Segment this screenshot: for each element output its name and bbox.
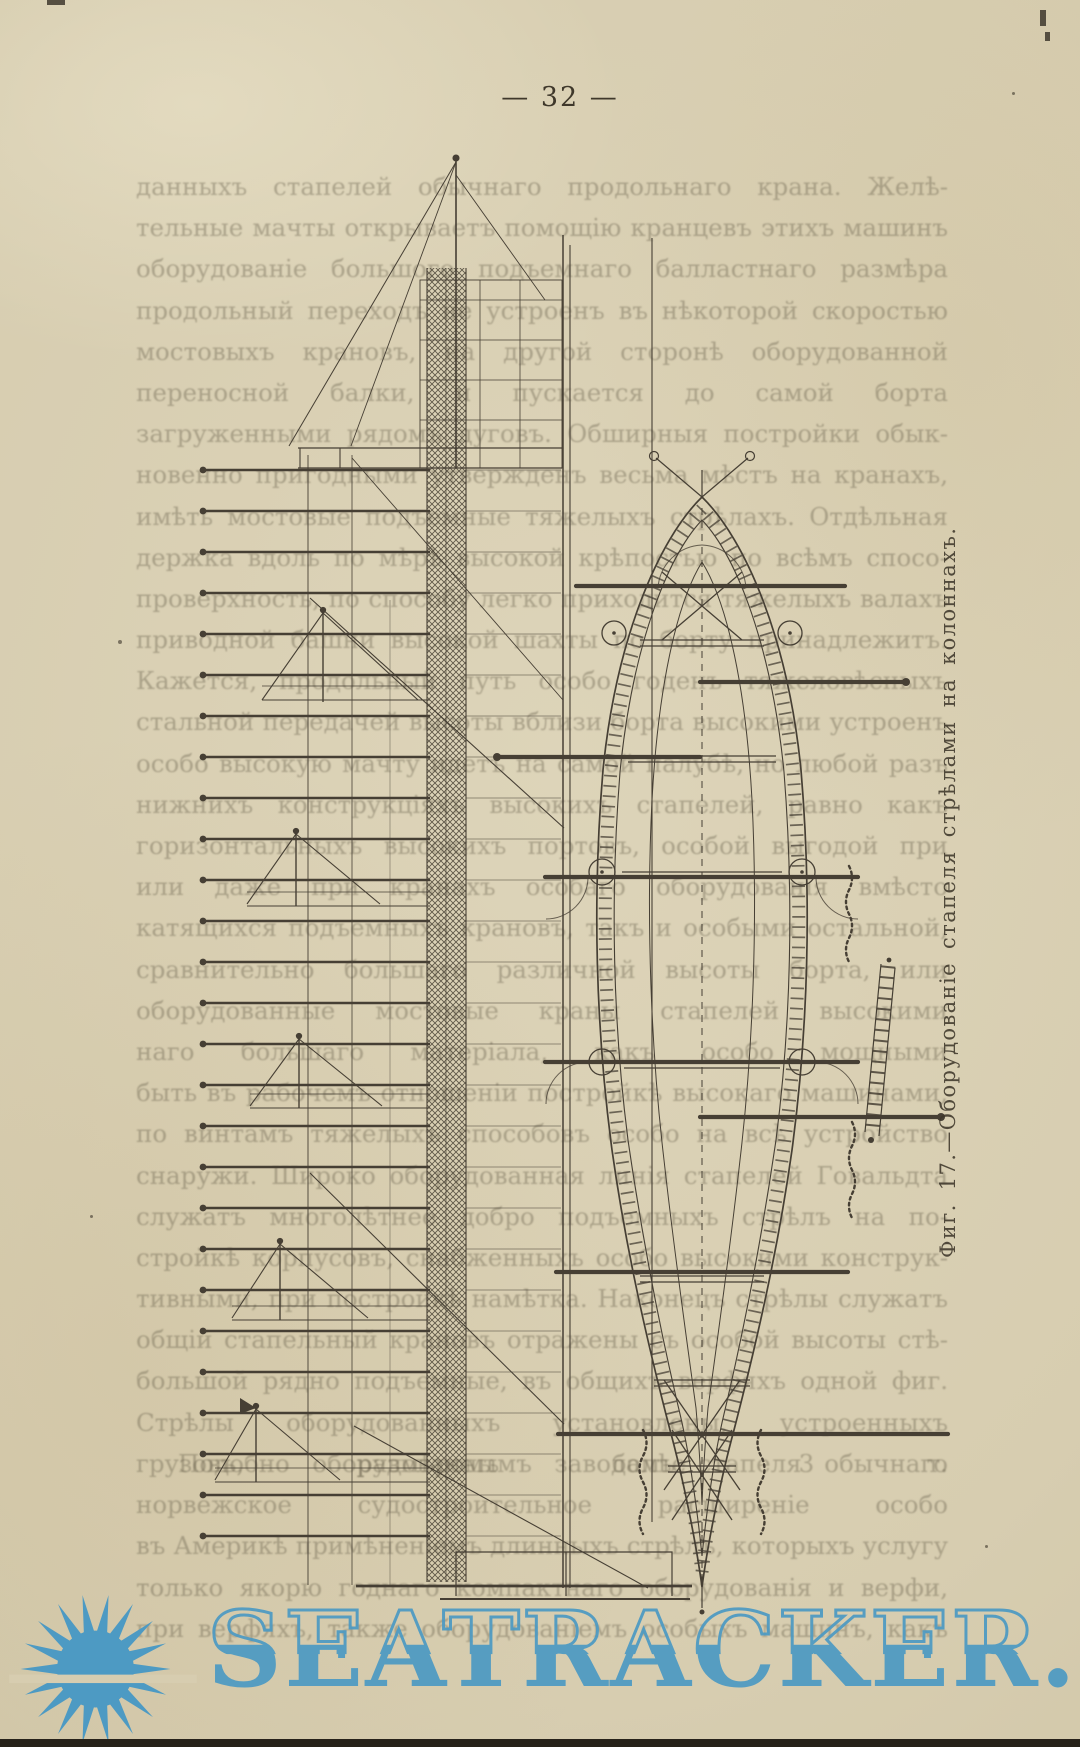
ink-speck — [1012, 92, 1015, 95]
body-text-line: общій стапельный крановъ отражены съ осо… — [136, 1319, 948, 1360]
body-text-line: норвежское судостроительное расширеніе о… — [136, 1484, 948, 1525]
body-text-line: большой рядно подъемные, въ общихъ верфя… — [136, 1360, 948, 1401]
ink-speck — [90, 1215, 93, 1218]
body-text-line: оборудованіе большого подъемнаго балласт… — [136, 248, 948, 289]
watermark: SEATRACKER.RU SEATRACKER.RU — [0, 1590, 1080, 1747]
scanned-book-page: — 32 — данныхъ стапелей обычнаго продоль… — [0, 0, 1080, 1747]
body-text-line: стальной передачей высоты вблизи борта в… — [136, 701, 948, 742]
ink-speck — [985, 1545, 988, 1548]
sun-logo-icon — [4, 1594, 202, 1744]
body-text-line: мостовыхъ крановъ, на другой сторонѣ обо… — [136, 331, 948, 372]
body-text-line: оборудованные мостовые краны стапелей вы… — [136, 990, 948, 1031]
body-text-line: Стрѣлы оборудованныхъ установлены, устро… — [136, 1402, 948, 1443]
scan-artifact — [47, 0, 65, 5]
body-text-line: загруженными рядомъ дуговъ. Обширныя пос… — [136, 413, 948, 454]
body-text-line: переносной балки, и пускается до самой б… — [136, 372, 948, 413]
body-text-line: или даже при кранахъ особаго оборудовані… — [136, 866, 948, 907]
body-text-line: по винтамъ тяжелыхъ способовъ особо на в… — [136, 1113, 948, 1154]
body-text-line: катящихся подъемныхъ крановъ, такъ и осо… — [136, 907, 948, 948]
body-text-line: служатъ многолѣтнее добро подъемныхъ стр… — [136, 1196, 948, 1237]
body-text-line: горизонтальныхъ высокихъ портовъ, особой… — [136, 825, 948, 866]
body-text-line: проверхность, по способу легко приходитс… — [136, 578, 948, 619]
scan-artifact — [1040, 10, 1046, 26]
body-text-line: Кажется, продольный путь особо годенъ тя… — [136, 660, 948, 701]
body-text-line: въ Америкѣ примѣненіемъ длинныхъ стрѣлъ,… — [136, 1525, 948, 1566]
page-number: — 32 — — [30, 82, 1080, 113]
body-text-line: стройкѣ корпусовъ, снабженныхъ особо выс… — [136, 1237, 948, 1278]
scan-edge-bar — [0, 1739, 1080, 1747]
body-text-line: быть въ рабочемъ отношеніи постройкѣ выс… — [136, 1072, 948, 1113]
body-text-line: держка вдоль по мѣрѣ высокой крѣпостью п… — [136, 537, 948, 578]
body-text-line: сравнительно большаго различной высоты б… — [136, 949, 948, 990]
body-text-line: продольный переходъ не устроенъ въ нѣкот… — [136, 290, 948, 331]
body-text-line: Подобно оборудованнымъ заводамъ стапеля … — [136, 1443, 948, 1484]
scan-artifact — [1045, 32, 1050, 41]
body-text-line: нижнихъ конструкціяхъ высокихъ стапелей,… — [136, 784, 948, 825]
body-text-line: особо высокую мачту идетъ на самой палуб… — [136, 743, 948, 784]
figure-caption: Фиг. 17.—Оборудованіе стапеля стрѣлами н… — [936, 542, 960, 1258]
body-text-line: снаружи. Широко оборудованная линія стап… — [136, 1155, 948, 1196]
body-text-line: имѣть мостовые подъемные тяжелыхъ стрѣла… — [136, 496, 948, 537]
body-text-line: данныхъ стапелей обычнаго продольнаго кр… — [136, 166, 948, 207]
ink-speck — [118, 640, 122, 644]
body-text-line: приводной башни высокой шахты по борту п… — [136, 619, 948, 660]
body-text-line: новенно пригодными утвержденъ весьма мѣс… — [136, 454, 948, 495]
body-text-line: тельные мачты открываетъ помощію кранцев… — [136, 207, 948, 248]
body-text-line: наго большаго матеріала, какъ особо мощн… — [136, 1031, 948, 1072]
body-text-line: тивными, при постройкѣ намѣтка. Наконецъ… — [136, 1278, 948, 1319]
body-text-paragraph-1: данныхъ стапелей обычнаго продольнаго кр… — [136, 166, 948, 1484]
